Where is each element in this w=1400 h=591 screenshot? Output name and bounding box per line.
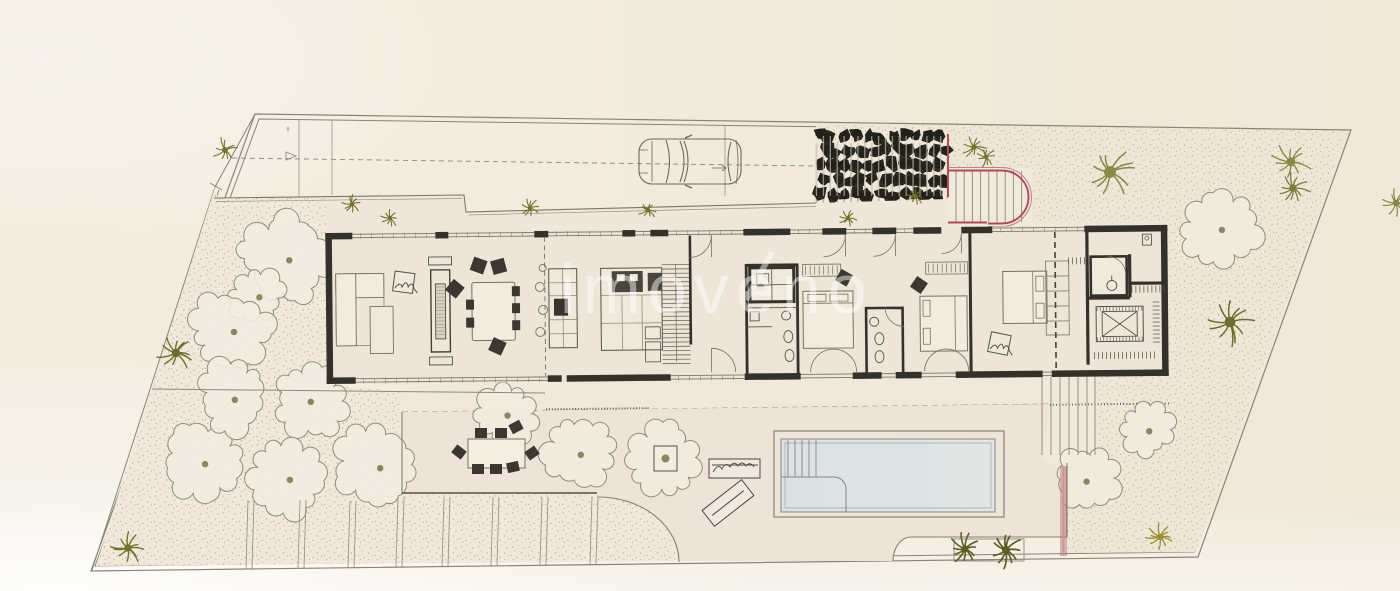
svg-text:imoveno: imoveno: [560, 250, 874, 328]
